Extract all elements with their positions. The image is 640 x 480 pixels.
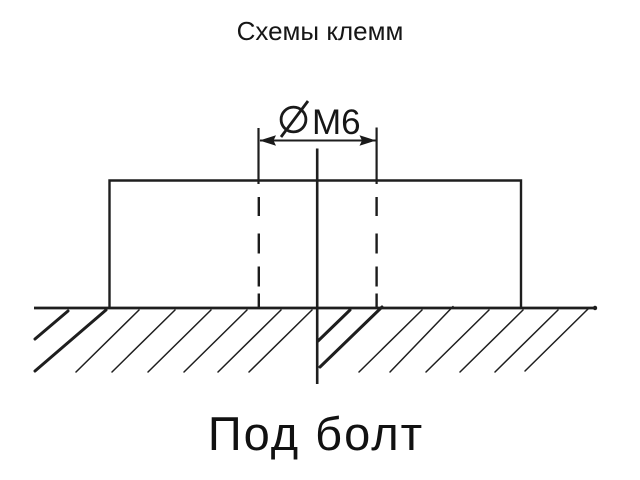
svg-text:Схемы клемм: Схемы клемм [237, 16, 404, 46]
svg-text:Под болт: Под болт [208, 407, 424, 460]
svg-text:М6: М6 [312, 103, 361, 142]
